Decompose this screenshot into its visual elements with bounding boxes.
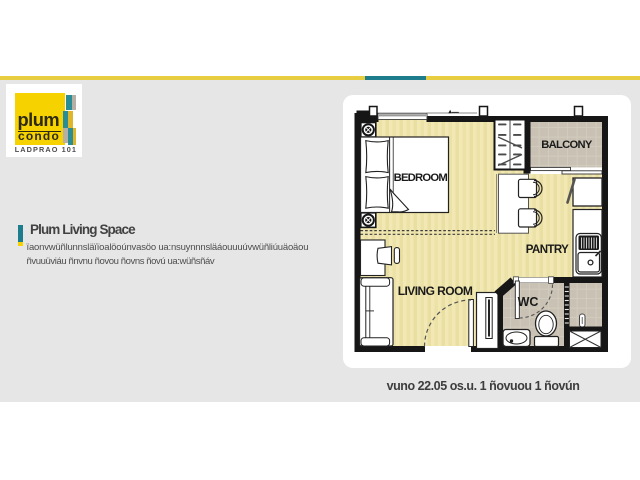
svg-text:BALCONY: BALCONY bbox=[541, 139, 593, 151]
svg-text:BEDROOM: BEDROOM bbox=[394, 172, 448, 184]
svg-text:PANTRY: PANTRY bbox=[526, 244, 569, 256]
svg-text:LIVING ROOM: LIVING ROOM bbox=[398, 284, 473, 298]
svg-text:WC: WC bbox=[518, 295, 539, 309]
